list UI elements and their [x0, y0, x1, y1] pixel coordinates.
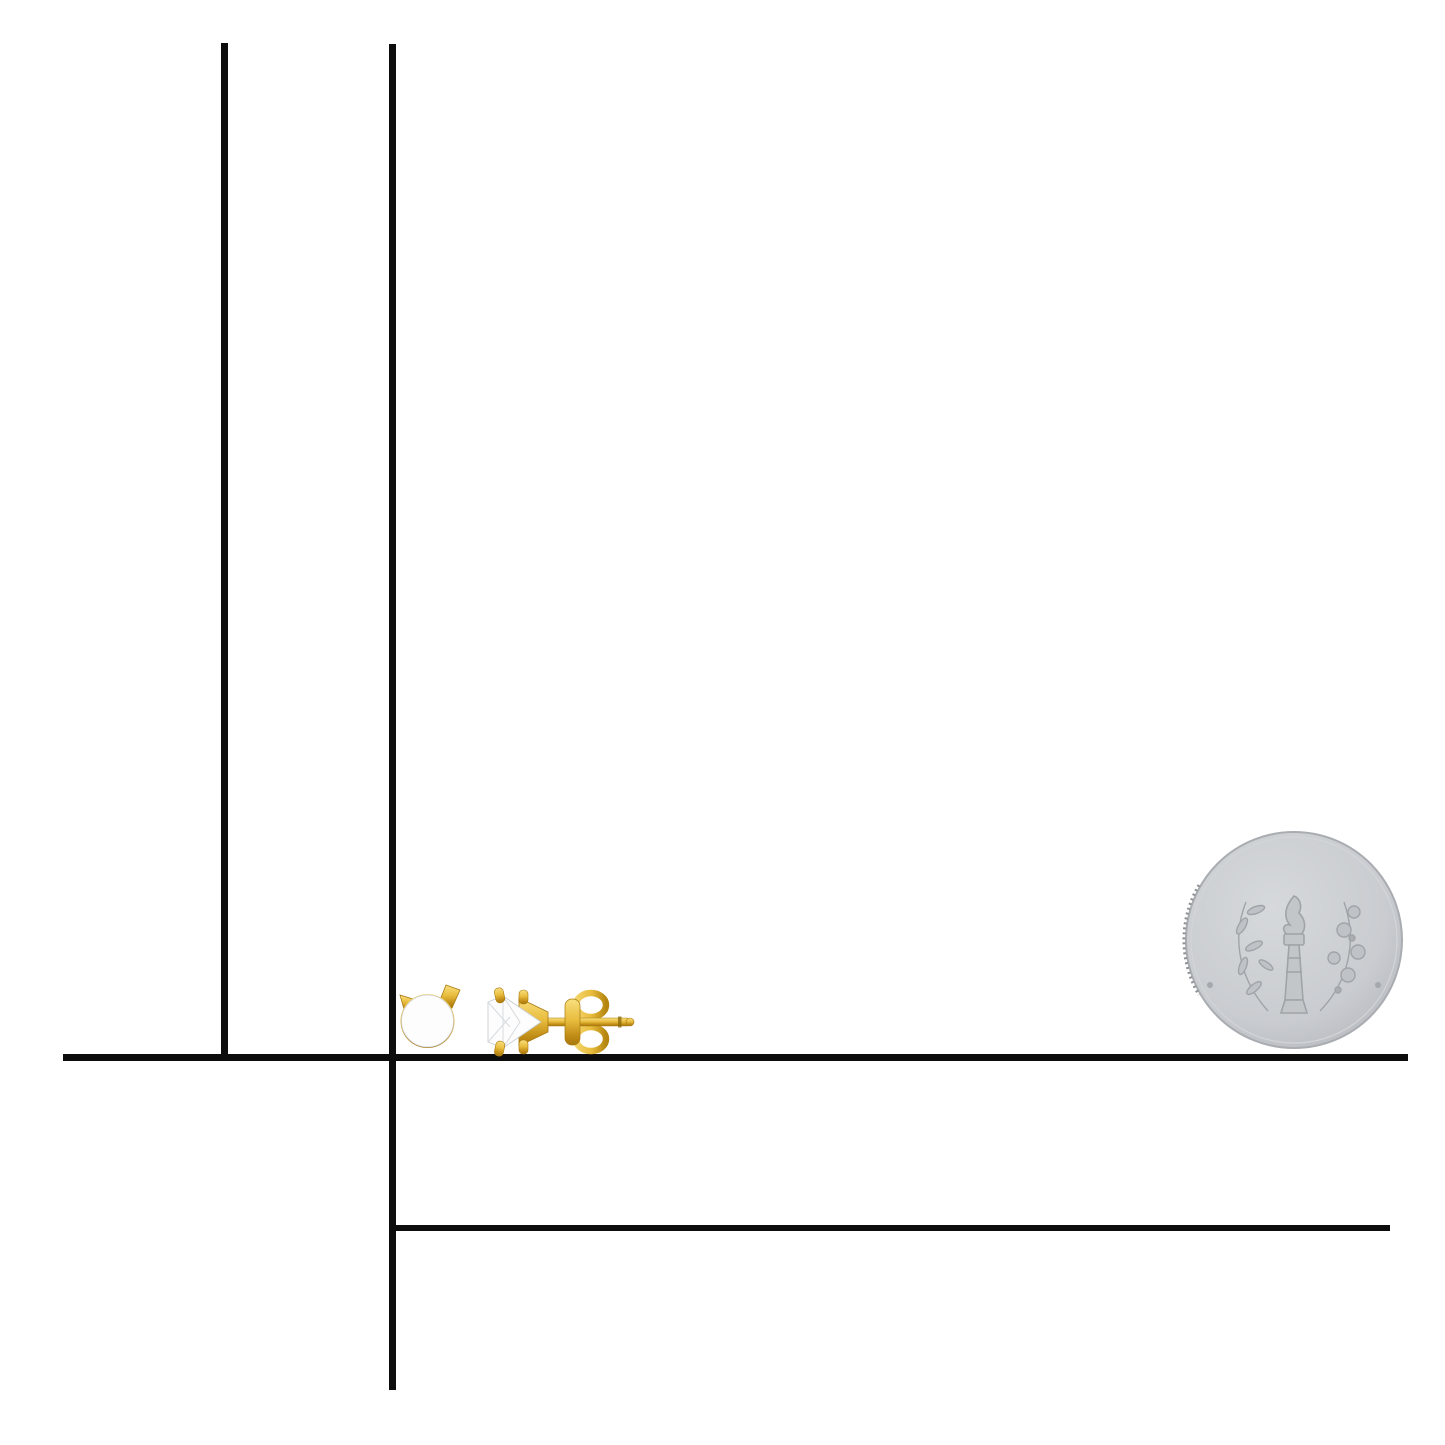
dime-coin	[1180, 826, 1412, 1056]
bottom-rulers-left-edge-line	[389, 1054, 396, 1390]
diamond-side	[488, 996, 541, 1048]
stud-earring-side-view	[488, 987, 634, 1057]
ruler-horizontal-inches-top-line	[392, 1225, 1390, 1231]
stud-earring-front-view	[400, 985, 460, 1048]
butterfly-back-top-loop	[576, 993, 606, 1017]
coin-separator-dot	[1375, 982, 1381, 988]
stud-side-prong	[519, 990, 528, 1004]
stud-side-prong	[519, 1040, 528, 1054]
coin-separator-dot	[1207, 982, 1213, 988]
product-measurement-image	[0, 0, 1445, 1445]
post-tip	[626, 1018, 634, 1026]
butterfly-back-barrel	[565, 999, 580, 1045]
post-notch	[618, 1017, 622, 1028]
ruler-vertical-inches-edge-line	[221, 43, 228, 1061]
ruler-vertical-mm-edge-line	[389, 44, 396, 1061]
butterfly-back-bottom-loop	[576, 1027, 606, 1051]
earrings-photo	[378, 970, 658, 1064]
diamond-front	[402, 995, 454, 1047]
earring-post	[545, 1018, 630, 1026]
